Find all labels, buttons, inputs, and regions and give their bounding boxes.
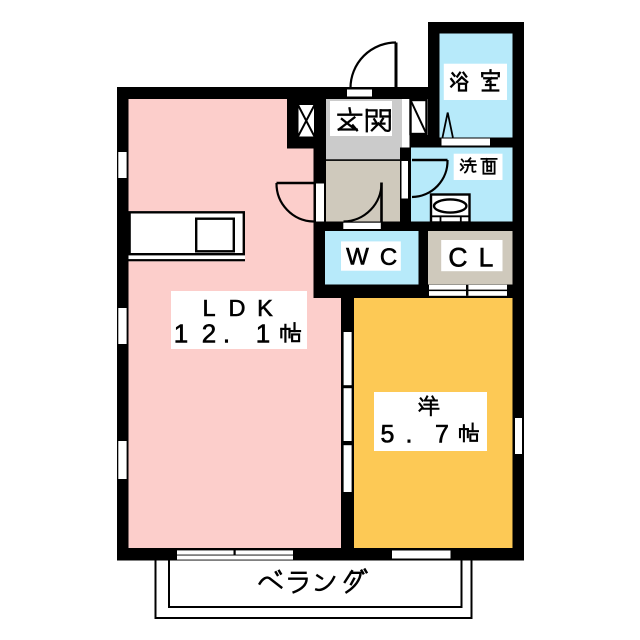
svg-text:K: K [257, 295, 273, 321]
svg-text:C: C [380, 244, 397, 271]
svg-text:C: C [448, 243, 467, 273]
svg-text:L: L [202, 295, 215, 321]
svg-text:5: 5 [381, 421, 395, 449]
svg-text:W: W [346, 244, 369, 271]
svg-text:1: 1 [256, 319, 270, 349]
svg-text:L: L [479, 243, 494, 273]
svg-text:2: 2 [202, 319, 216, 349]
svg-text:7: 7 [435, 421, 449, 449]
svg-text:D: D [229, 295, 246, 321]
svg-text:.: . [406, 421, 413, 449]
svg-text:.: . [223, 319, 230, 349]
svg-text:1: 1 [174, 319, 188, 349]
